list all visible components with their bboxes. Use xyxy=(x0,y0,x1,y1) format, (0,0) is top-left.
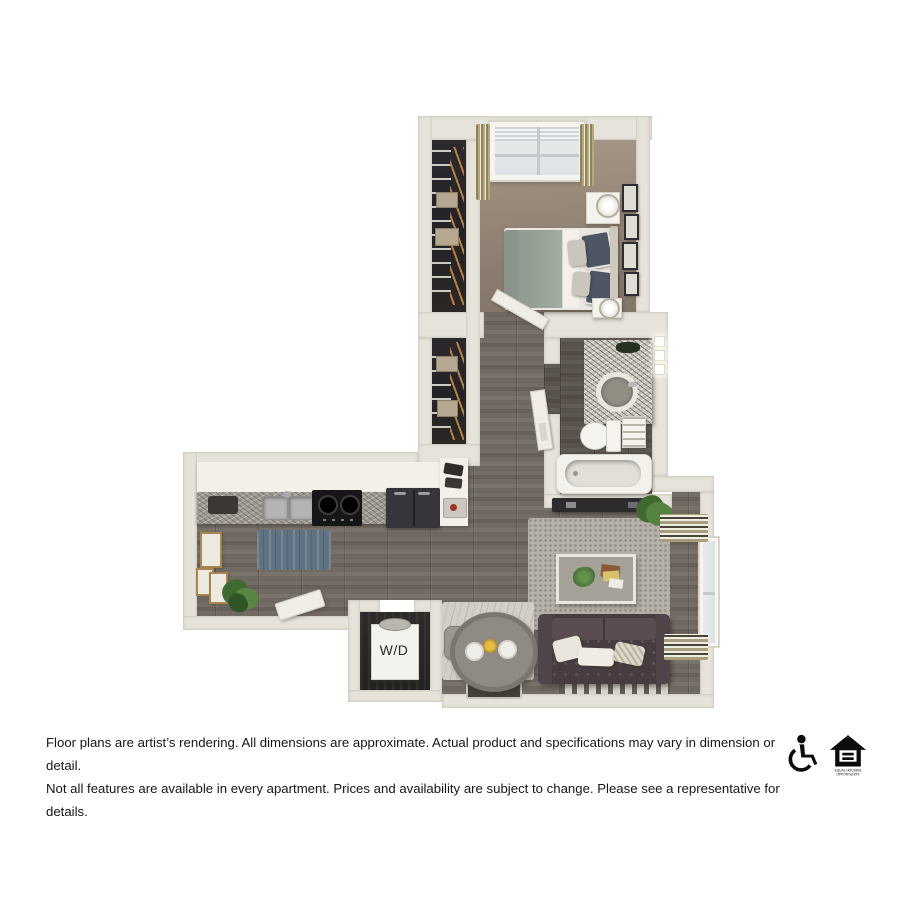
hall-bath-wall-upper xyxy=(544,338,560,364)
toilet-tank xyxy=(606,420,621,452)
dinner-plate xyxy=(498,640,517,659)
bathtub-drain xyxy=(573,471,578,476)
bedroom-left-wall xyxy=(418,116,432,338)
vanity-light xyxy=(654,364,665,375)
dinner-plate xyxy=(465,642,484,661)
dining-table xyxy=(450,612,538,692)
footer-icons: EQUAL HOUSING OPPORTUNITY xyxy=(785,733,867,784)
towel-shelf xyxy=(622,416,646,448)
refrigerator xyxy=(386,488,440,528)
vanity-faucet xyxy=(628,382,637,387)
kitchen-bottom-wall xyxy=(183,616,360,630)
living-curtain-top xyxy=(660,514,708,542)
cutting-board xyxy=(443,462,464,476)
page: { "floorplan": { "washer_dryer_label": "… xyxy=(0,0,900,900)
hall-left-wall xyxy=(418,338,432,456)
disclaimer-line-2: Not all features are available in every … xyxy=(46,777,791,823)
window-mullion-v xyxy=(537,127,540,175)
decor-bowl xyxy=(450,504,457,511)
storage-box xyxy=(436,356,458,372)
bathtub xyxy=(556,454,652,494)
fridge-handle xyxy=(394,492,406,495)
wd-closet-right-wall xyxy=(430,600,442,702)
counter-tray xyxy=(208,496,238,514)
burner xyxy=(340,495,360,515)
bedroom-window xyxy=(488,120,586,182)
coffee-table-magazine xyxy=(608,578,623,589)
vanity-light xyxy=(654,336,665,347)
window-sash xyxy=(703,592,715,595)
sofa-pillow xyxy=(612,641,646,667)
kitchen-blue-rug xyxy=(257,530,331,570)
equal-housing-caption-line2: OPPORTUNITY xyxy=(836,772,860,776)
disclaimer-text: Floor plans are artist’s rendering. All … xyxy=(46,731,791,823)
wire-shelving xyxy=(432,150,451,301)
bedroom-curtain-right xyxy=(580,124,594,186)
bedroom-curtain-left xyxy=(476,124,490,200)
table-lamp xyxy=(599,298,620,319)
sink-faucet xyxy=(283,491,291,498)
disclaimer-line-1: Floor plans are artist’s rendering. All … xyxy=(46,731,791,777)
coffee-table xyxy=(556,554,636,604)
vanity-light xyxy=(654,350,665,361)
washer-dryer-label: W/D xyxy=(371,642,417,658)
kitchen-wall-art xyxy=(200,532,222,568)
living-step-wall xyxy=(652,476,714,492)
counter-end-cap xyxy=(440,458,468,526)
burner xyxy=(318,495,338,515)
sofa xyxy=(538,614,670,684)
kitchen-sink xyxy=(260,494,314,520)
clothes-hangers xyxy=(450,147,464,305)
sofa-arm-left xyxy=(538,614,552,684)
living-room-window xyxy=(698,536,720,648)
fridge-handle xyxy=(418,492,430,495)
console-decor xyxy=(566,502,576,508)
fridge-door-split xyxy=(413,490,415,526)
sofa-cushion-split xyxy=(603,618,605,640)
hallway-closet xyxy=(432,338,466,444)
vanity-sink xyxy=(596,372,638,412)
stove-knobs xyxy=(320,518,354,522)
washer-drum-top xyxy=(379,618,411,631)
bedroom-wall-art xyxy=(624,272,639,296)
storage-box xyxy=(435,228,459,246)
coffee-table-plant xyxy=(573,567,595,587)
wd-closet-left-wall xyxy=(348,600,360,702)
equal-housing-opportunity-icon: EQUAL HOUSING OPPORTUNITY xyxy=(829,733,867,784)
sink-basin xyxy=(288,496,314,520)
storage-box xyxy=(437,400,458,417)
bedroom-wall-art xyxy=(622,184,638,212)
stove-cooktop xyxy=(312,490,362,526)
bedroom-wall-art xyxy=(624,214,639,240)
wheelchair-accessible-icon xyxy=(785,733,821,782)
kitchen-left-wall xyxy=(183,452,197,630)
sofa-pillow xyxy=(578,647,615,666)
bedroom-closet xyxy=(432,140,466,312)
sink-basin xyxy=(262,496,288,520)
bathroom-vanity xyxy=(584,340,652,424)
window-mullion-h xyxy=(495,154,579,157)
toilet xyxy=(580,420,622,450)
storage-box xyxy=(436,192,458,208)
bed-pillow-light xyxy=(567,239,588,267)
table-lamp xyxy=(596,194,620,218)
vanity-decor-plant xyxy=(616,342,640,353)
cutting-board xyxy=(445,477,463,489)
bed-pillow-light xyxy=(571,271,591,296)
living-curtain-bottom xyxy=(664,634,708,660)
bed-duvet xyxy=(518,230,564,308)
bedroom-wall-art xyxy=(622,242,638,270)
wd-closet-bottom-wall xyxy=(348,690,442,702)
table-centerpiece xyxy=(483,639,497,653)
